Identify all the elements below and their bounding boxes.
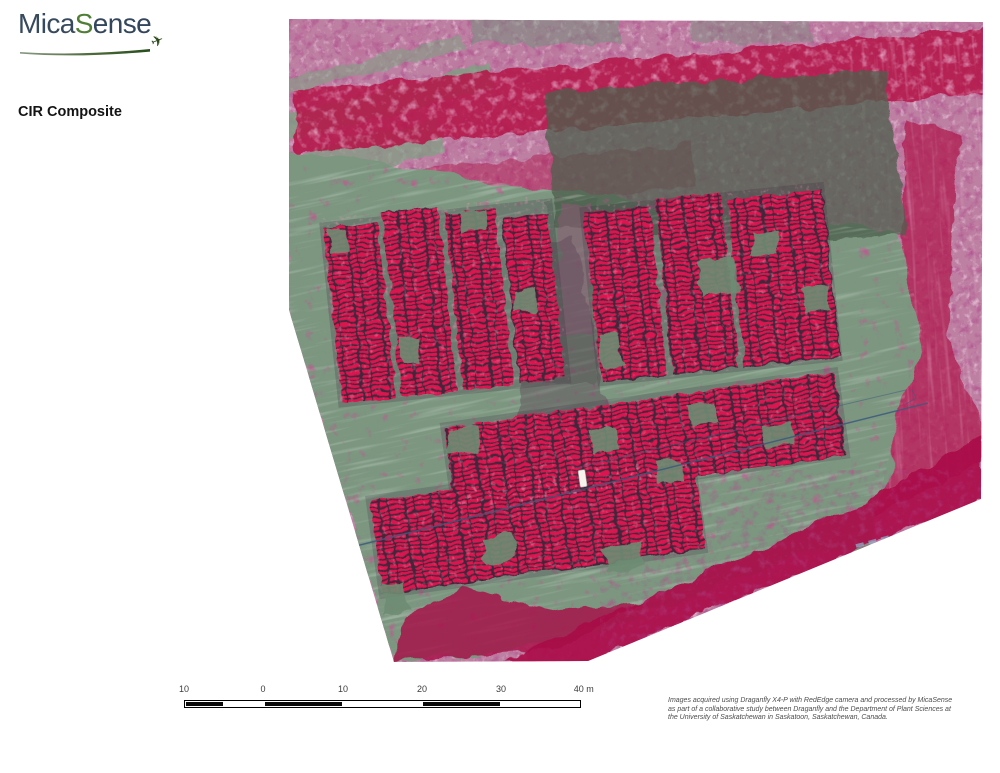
- logo-text-s: S: [75, 8, 93, 39]
- logo-wordmark: MicaSense: [18, 10, 188, 38]
- plot-block-upper-left: [319, 194, 572, 407]
- scale-bar-segment: [422, 701, 501, 707]
- micasense-logo: MicaSense ✈: [18, 10, 188, 66]
- scale-label: 10: [338, 684, 348, 694]
- page-title: CIR Composite: [18, 104, 122, 120]
- scale-bar-segment: [224, 701, 264, 707]
- scale-label: 10: [179, 684, 189, 694]
- map-scale-bar: 10 0 10 20 30 40 m: [184, 684, 584, 712]
- attribution-line: the University of Saskatchewan in Saskat…: [668, 714, 990, 723]
- scale-bar-segment: [343, 701, 422, 707]
- scale-label: 0: [260, 684, 265, 694]
- attribution-text: Images acquired using Draganfly X4-P wit…: [668, 697, 990, 723]
- scale-bar-segment: [264, 701, 343, 707]
- scale-bar-segment: [501, 701, 580, 707]
- scale-label: 40 m: [574, 684, 594, 694]
- cir-composite-aerial-image: [0, 0, 1000, 773]
- scale-label: 20: [417, 684, 427, 694]
- attribution-line: Images acquired using Draganfly X4-P wit…: [668, 697, 990, 706]
- logo-text-ense: ense: [93, 8, 151, 39]
- scale-bar-track: [184, 700, 581, 708]
- logo-text-mica: Mica: [18, 8, 75, 39]
- scale-bar-segment: [185, 701, 224, 707]
- attribution-line: as part of a collaborative study between…: [668, 706, 990, 715]
- scale-label: 30: [496, 684, 506, 694]
- plot-block-upper-right: [579, 182, 842, 387]
- scale-bar-labels: 10 0 10 20 30 40 m: [184, 684, 584, 696]
